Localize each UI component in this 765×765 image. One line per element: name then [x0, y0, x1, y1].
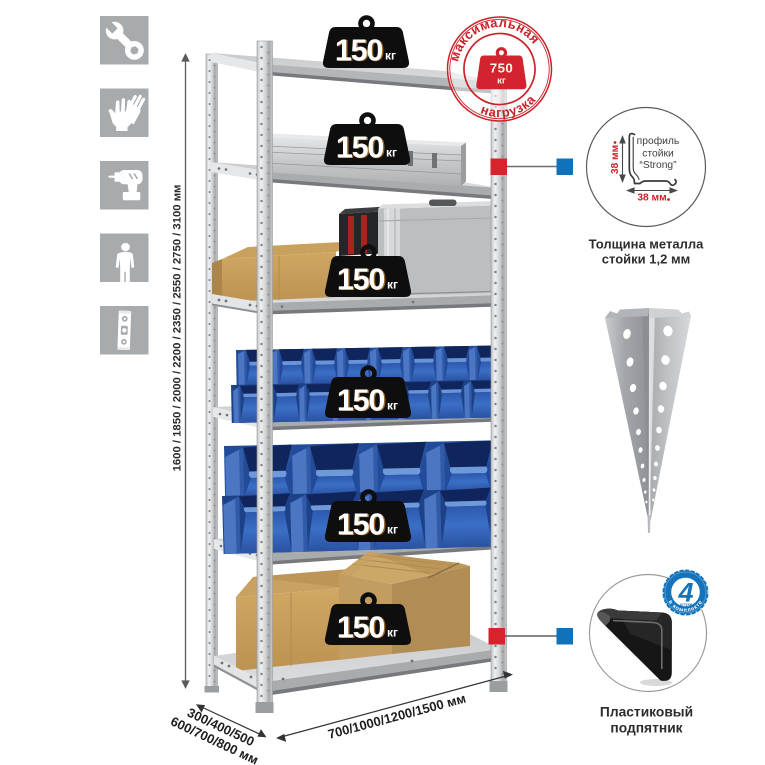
svg-text:стойки: стойки: [642, 149, 674, 160]
svg-text:Пластиковый: Пластиковый: [600, 705, 693, 720]
svg-text:кг: кг: [497, 76, 506, 87]
svg-text:Толщина металла: Толщина металла: [589, 237, 704, 252]
svg-text:профиль: профиль: [637, 135, 680, 147]
svg-text:1600 / 1850 / 2000 / 2200 / 23: 1600 / 1850 / 2000 / 2200 / 2350 / 2550 …: [172, 185, 184, 472]
svg-text:38 мм: 38 мм: [637, 193, 666, 204]
svg-text:штуки: штуки: [680, 602, 693, 607]
svg-text:750: 750: [490, 60, 513, 75]
svg-text:подпятник: подпятник: [610, 721, 682, 736]
svg-text:стойки 1,2 мм: стойки 1,2 мм: [602, 252, 690, 267]
svg-text:38 мм: 38 мм: [610, 145, 621, 174]
svg-text:“Strong”: “Strong”: [639, 160, 677, 171]
